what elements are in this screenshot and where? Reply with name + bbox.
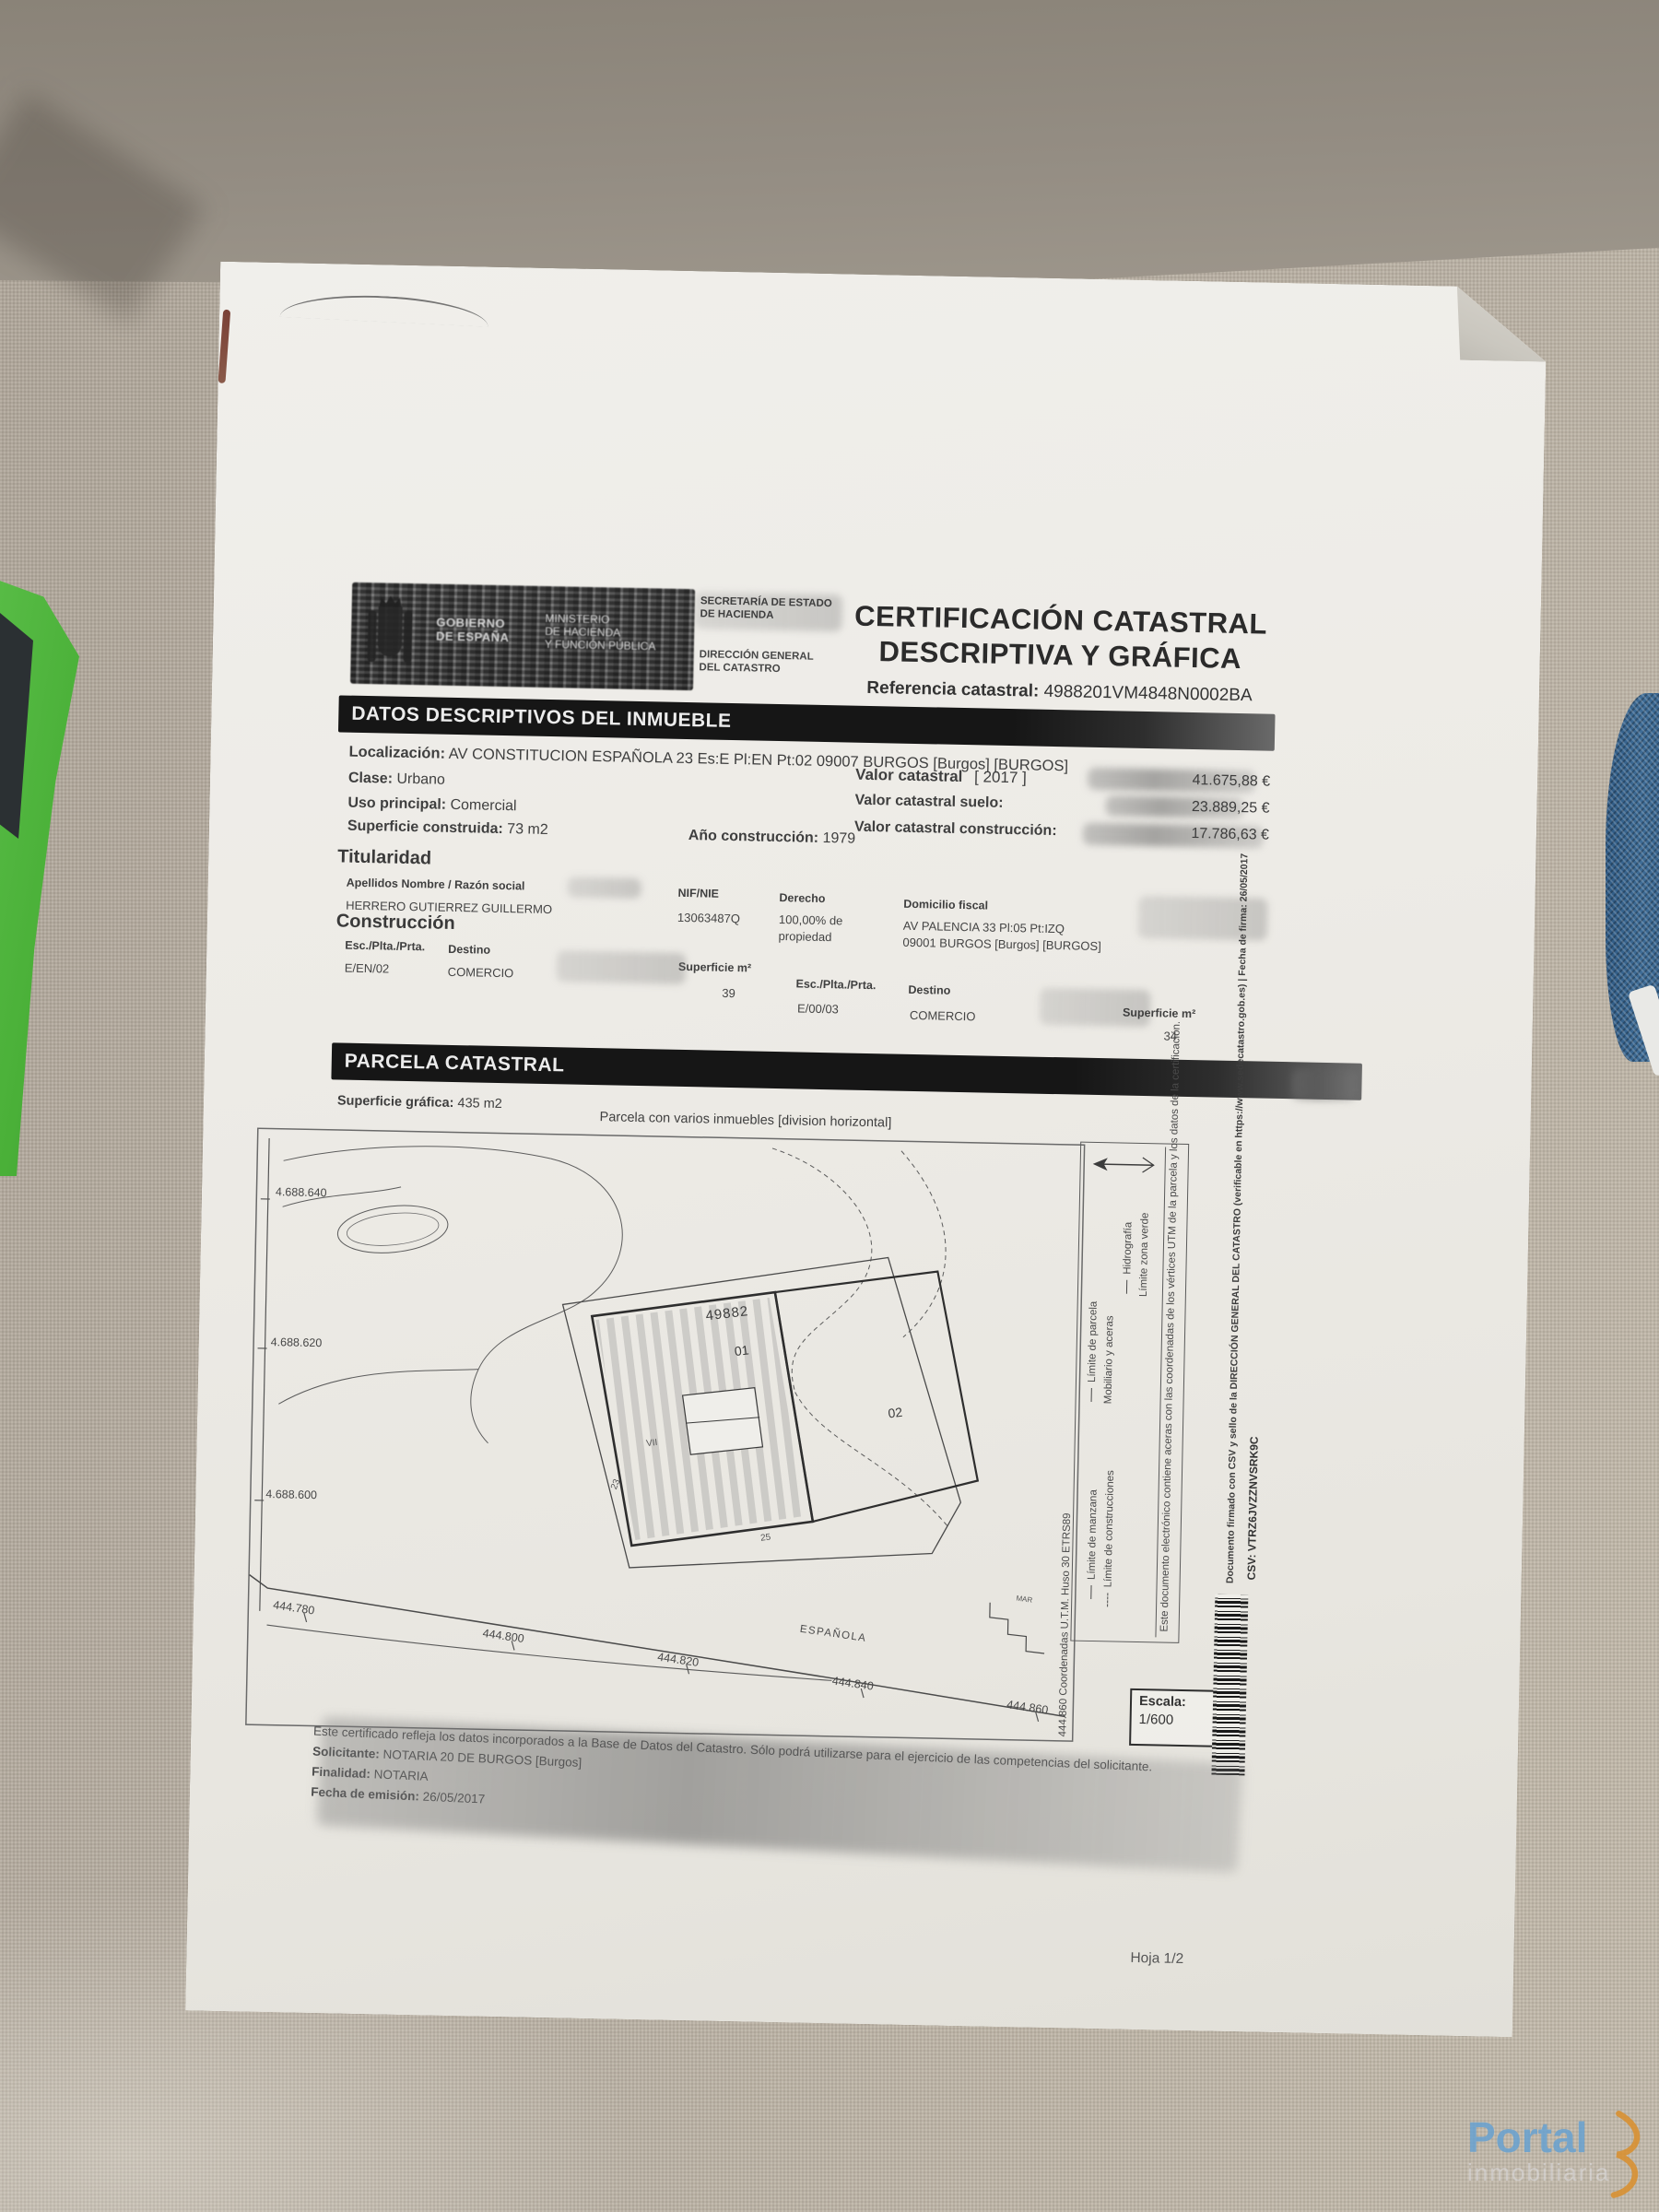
agency-gobierno-label: GOBIERNO DE ESPAÑA [436,616,510,645]
map-x-tick: 444.840 [831,1674,875,1692]
green-folder-black-cover [0,608,33,839]
uso-value: Comercial [450,797,516,814]
superficie-grafica-row: Superficie gráfica: 435 m2 [337,1093,502,1112]
portal-watermark: Portal inmobiliaria [1467,2116,1659,2186]
agency-logo-band: GOBIERNO DE ESPAÑA MINISTERIO DE HACIEND… [350,582,695,690]
valor-suelo-value: 23.889,25 € [1076,796,1269,817]
uso-label: Uso principal: [347,795,446,813]
valor-suelo-label: Valor catastral suelo: [854,793,1003,811]
map-unit-02: 02 [888,1405,904,1421]
superficie-label: Superficie construida: [347,818,503,837]
large-ink-smear [317,1717,1243,1873]
construccion-r1-esc: E/EN/02 [345,961,390,976]
valor-construccion-row: Valor catastral construcción: [854,819,1057,840]
north-arrow-icon [1088,1153,1158,1181]
map-floors-label: VII [646,1438,658,1449]
legend-limite-manzana: Límite de manzana [1086,1489,1099,1599]
map-street-name: ESPAÑOLA [799,1623,867,1644]
valor-catastral-year: [ 2017 ] [974,768,1027,786]
scale-label: Escala: [1139,1694,1215,1711]
superficie-row: Superficie construida: 73 m2 [347,818,548,839]
superficie-value: 73 m2 [507,821,548,838]
map-unit-01: 01 [734,1342,750,1359]
anio-value: 1979 [822,830,855,847]
background-wall-band [0,0,1659,295]
map-x-tick: 444.820 [656,1651,700,1669]
map-small-label: MAR [1016,1594,1033,1604]
construccion-r1-destino: COMERCIO [448,965,514,980]
pencil-arc-mark [280,291,489,327]
spain-coat-of-arms-icon [365,594,415,678]
construccion-h-esc-1: Esc./Plta./Prta. [345,939,425,954]
valor-suelo-row: Valor catastral suelo: [854,793,1003,812]
document-title-block: CERTIFICACIÓN CATASTRAL DESCRIPTIVA Y GR… [822,598,1299,707]
localizacion-label: Localización: [348,744,445,762]
legend-mobiliario: Mobiliario y aceras [1103,1315,1116,1404]
print-smudge [557,950,687,984]
cadastral-reference-label: Referencia catastral: [866,678,1039,701]
section-bar-parcela: PARCELA CATASTRAL [331,1042,1362,1100]
green-folder [0,579,79,1176]
red-pen-mark [218,310,230,383]
blue-fabric-object [1606,693,1659,1062]
map-x-tick: 444.860 [1006,1698,1049,1716]
col-nif: NIF/NIE [677,887,719,900]
anio-label: Año construcción: [688,828,819,846]
col-derecho: Derecho [779,891,825,905]
clase-label: Clase: [348,771,393,787]
construccion-r2-destino: COMERCIO [910,1008,976,1023]
valor-catastral-row: Valor catastral [ 2017 ] [855,766,1027,788]
construccion-h-sup-1: Superficie m² [678,960,751,975]
construccion-h-sup-2: Superficie m² [1123,1006,1195,1021]
csv-line: CSV: VTRZ6JVZZNVSRK9C [1245,1436,1261,1580]
cadastral-parcel-map: 4.688.640 4.688.620 4.688.600 [244,1127,1086,1743]
white-paper-corner [1628,984,1659,1077]
construccion-h-destino-2: Destino [908,983,950,997]
titular-derecho-tipo: propiedad [778,929,831,944]
col-nombre: Apellidos Nombre / Razón social [347,877,525,893]
uso-row: Uso principal: Comercial [347,795,516,816]
agency-ministerio-label: MINISTERIO DE HACIENDA Y FUNCIÓN PÚBLICA [545,612,656,653]
parcela-nota: Parcela con varios inmuebles [division h… [599,1110,891,1130]
map-x-tick: 444.800 [482,1627,525,1645]
titular-derecho-pct: 100,00% de [779,912,843,927]
legend-zona-verde: Límite zona verde [1138,1213,1151,1298]
construccion-h-esc-2: Esc./Plta./Prta. [795,977,876,992]
cadastral-reference-value: 4988201VM4848N0002BA [1043,682,1252,706]
clase-row: Clase: Urbano [348,771,445,789]
print-smudge [567,877,641,899]
construccion-r1-sup: 39 [722,986,735,1000]
superficie-grafica-label: Superficie gráfica: [337,1093,454,1111]
cadastral-certificate-page: GOBIERNO DE ESPAÑA MINISTERIO DE HACIEND… [185,262,1547,2038]
titularidad-heading: Titularidad [337,846,431,869]
titular-domicilio-2: 09001 BURGOS [Burgos] [BURGOS] [902,935,1101,953]
print-smudge [1291,1068,1357,1100]
map-y-tick: 4.688.600 [265,1488,317,1501]
titular-nif: 13063487Q [677,911,740,925]
map-scale-box: Escala: 1/600 [1129,1688,1217,1747]
clase-value: Urbano [396,771,445,788]
map-x-tick: 444.780 [272,1598,315,1617]
folded-corner [1455,287,1547,362]
scale-value: 1/600 [1138,1712,1214,1729]
col-domicilio: Domicilio fiscal [903,898,988,912]
valor-catastral-label: Valor catastral [855,766,963,785]
map-portal-25: 25 [759,1532,771,1543]
anio-row: Año construcción: 1979 [688,828,856,848]
legend-hidrografia: Hidrografía [1122,1222,1135,1294]
legend-limite-parcela: Límite de parcela [1087,1301,1100,1402]
superficie-grafica-value: 435 m2 [457,1096,502,1112]
construccion-heading: Construcción [336,911,455,935]
construccion-h-destino-1: Destino [448,943,490,957]
barcode [1211,1594,1248,1776]
cadastral-reference: Referencia catastral: 4988201VM4848N0002… [822,677,1297,707]
photo-scene: GOBIERNO DE ESPAÑA MINISTERIO DE HACIEND… [0,0,1659,2212]
titular-domicilio-1: AV PALENCIA 33 Pl:05 Pt:IZQ [903,919,1065,936]
page-number: Hoja 1/2 [1130,1950,1183,1968]
map-y-tick: 4.688.640 [276,1185,327,1199]
map-y-tick: 4.688.620 [271,1335,323,1349]
construccion-r2-esc: E/00/03 [797,1001,839,1016]
valor-construccion-label: Valor catastral construcción: [854,819,1057,839]
